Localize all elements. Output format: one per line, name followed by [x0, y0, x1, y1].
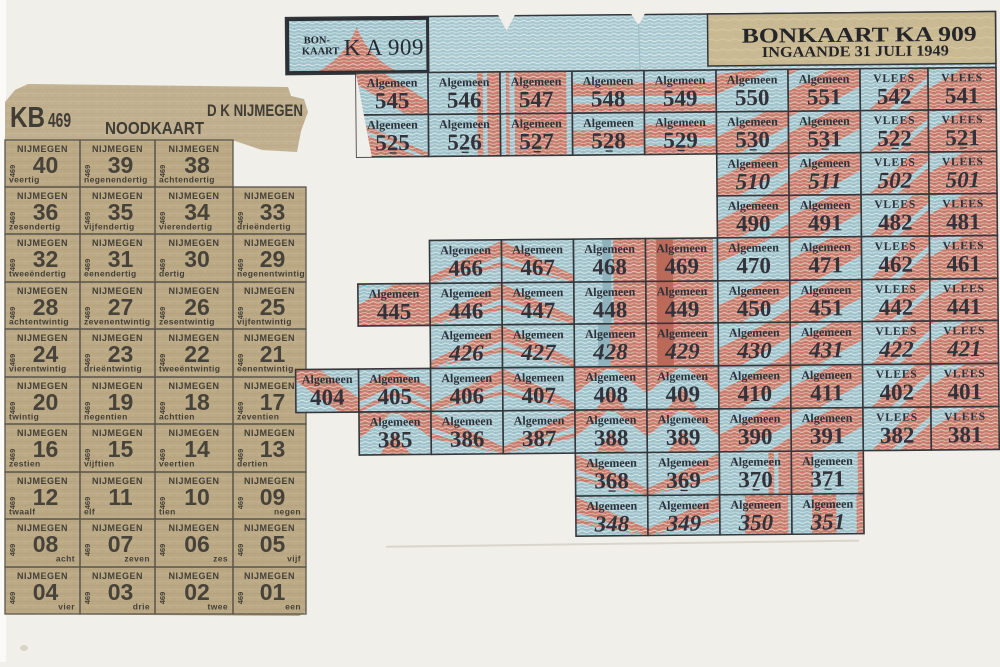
svg-text:531: 531 [807, 126, 842, 151]
svg-text:zes: zes [213, 554, 228, 564]
svg-text:501: 501 [946, 167, 981, 192]
svg-text:drieëndertig: drieëndertig [237, 222, 291, 232]
svg-text:402: 402 [879, 380, 914, 405]
svg-text:410: 410 [737, 381, 772, 406]
svg-text:471: 471 [808, 252, 843, 277]
svg-text:522: 522 [877, 126, 912, 151]
svg-text:386: 386 [450, 426, 485, 451]
svg-text:12: 12 [33, 484, 59, 510]
svg-text:442: 442 [879, 295, 914, 320]
svg-text:546: 546 [447, 87, 482, 112]
svg-text:469: 469 [48, 110, 71, 132]
svg-text:447: 447 [521, 298, 556, 323]
svg-text:389: 389 [666, 425, 701, 450]
svg-text:negen: negen [274, 507, 301, 517]
svg-text:30: 30 [184, 246, 210, 272]
svg-text:eenentwintig: eenentwintig [237, 364, 294, 374]
svg-text:382: 382 [880, 423, 915, 448]
svg-text:551: 551 [807, 84, 842, 109]
svg-text:achttien: achttien [159, 412, 195, 422]
svg-text:negentien: negentien [84, 412, 128, 422]
svg-text:achtentwintig: achtentwintig [9, 317, 69, 327]
svg-text:525: 525 [375, 130, 410, 155]
svg-text:545: 545 [375, 88, 410, 113]
svg-text:511: 511 [808, 168, 841, 193]
svg-text:vijftien: vijftien [84, 459, 115, 469]
svg-text:469: 469 [83, 592, 92, 605]
svg-text:409: 409 [665, 382, 700, 407]
svg-text:469: 469 [236, 544, 245, 557]
svg-text:446: 446 [449, 298, 484, 323]
svg-text:469: 469 [236, 592, 245, 605]
svg-text:dertien: dertien [237, 459, 268, 469]
svg-text:461: 461 [946, 251, 981, 276]
svg-text:08: 08 [33, 531, 59, 557]
svg-text:twintig: twintig [9, 412, 39, 422]
svg-text:548: 548 [591, 86, 626, 111]
svg-text:469: 469 [158, 544, 167, 557]
svg-text:vijfendertig: vijfendertig [84, 222, 135, 232]
svg-text:407: 407 [521, 383, 556, 408]
svg-text:D K NIJMEGEN: D K NIJMEGEN [207, 101, 303, 120]
svg-text:431: 431 [808, 337, 844, 362]
svg-text:428: 428 [592, 339, 628, 364]
svg-text:INGAANDE 31 JULI 1949: INGAANDE 31 JULI 1949 [762, 43, 949, 61]
svg-text:350: 350 [738, 510, 774, 535]
svg-text:KAART: KAART [302, 46, 340, 57]
svg-text:404: 404 [310, 385, 345, 410]
svg-text:381: 381 [948, 422, 983, 447]
svg-text:03: 03 [108, 579, 134, 605]
svg-text:K A 909: K A 909 [344, 34, 424, 60]
svg-text:387: 387 [522, 426, 557, 451]
svg-text:KB: KB [10, 102, 45, 134]
svg-text:421: 421 [946, 336, 982, 361]
svg-text:drie: drie [133, 602, 150, 612]
svg-text:550: 550 [735, 85, 770, 110]
svg-text:411: 411 [810, 380, 843, 405]
svg-text:466: 466 [448, 255, 483, 280]
svg-text:371: 371 [810, 466, 845, 491]
svg-text:547: 547 [519, 87, 554, 112]
svg-text:04: 04 [33, 579, 59, 605]
svg-text:469: 469 [158, 592, 167, 605]
svg-text:negenentwintig: negenentwintig [237, 269, 305, 279]
svg-text:zeventien: zeventien [237, 412, 279, 422]
svg-text:429: 429 [664, 339, 700, 364]
svg-text:502: 502 [878, 168, 913, 193]
svg-text:470: 470 [736, 253, 771, 278]
svg-text:NOODKAART: NOODKAART [105, 118, 204, 138]
svg-text:385: 385 [378, 427, 413, 452]
svg-text:01: 01 [260, 579, 286, 605]
svg-text:426: 426 [448, 340, 484, 365]
svg-text:462: 462 [878, 252, 913, 277]
svg-text:dertig: dertig [159, 269, 185, 279]
svg-text:401: 401 [947, 379, 982, 404]
svg-text:tweeëndertig: tweeëndertig [9, 269, 66, 279]
svg-text:348: 348 [594, 511, 630, 536]
svg-text:negenendertig: negenendertig [84, 175, 148, 185]
svg-text:388: 388 [594, 425, 629, 450]
svg-text:10: 10 [184, 484, 210, 510]
svg-text:526: 526 [447, 129, 482, 154]
svg-text:450: 450 [737, 296, 772, 321]
svg-text:481: 481 [946, 209, 981, 234]
svg-text:542: 542 [877, 84, 912, 109]
svg-text:469: 469 [8, 544, 17, 557]
svg-text:vijfentwintig: vijfentwintig [237, 317, 292, 327]
svg-text:achtendertig: achtendertig [159, 175, 215, 185]
svg-text:vier: vier [58, 602, 75, 612]
svg-text:zestien: zestien [9, 459, 41, 469]
svg-text:510: 510 [736, 169, 771, 194]
svg-text:05: 05 [260, 531, 286, 557]
svg-text:430: 430 [736, 338, 772, 363]
svg-text:445: 445 [377, 299, 412, 324]
svg-text:491: 491 [808, 210, 843, 235]
svg-text:467: 467 [520, 255, 555, 280]
svg-text:527: 527 [519, 129, 554, 154]
svg-text:acht: acht [56, 554, 75, 564]
svg-text:490: 490 [736, 211, 771, 236]
svg-text:vijf: vijf [287, 554, 301, 564]
svg-text:eenendertig: eenendertig [84, 269, 137, 279]
svg-text:391: 391 [810, 423, 845, 448]
svg-text:528: 528 [591, 128, 626, 153]
svg-text:441: 441 [947, 294, 982, 319]
svg-text:369: 369 [666, 468, 701, 493]
svg-text:541: 541 [945, 83, 980, 108]
svg-text:448: 448 [593, 297, 628, 322]
svg-text:521: 521 [945, 125, 980, 150]
svg-text:349: 349 [666, 511, 702, 536]
svg-text:405: 405 [377, 384, 412, 409]
svg-text:482: 482 [878, 210, 913, 235]
svg-text:zevenentwintig: zevenentwintig [84, 317, 151, 327]
svg-text:529: 529 [663, 128, 698, 153]
svg-text:veertig: veertig [9, 175, 40, 185]
svg-text:449: 449 [665, 297, 700, 322]
svg-text:vierentwintig: vierentwintig [9, 364, 67, 374]
svg-text:zesentwintig: zesentwintig [159, 317, 215, 327]
svg-text:549: 549 [663, 86, 698, 111]
svg-text:422: 422 [878, 337, 914, 362]
svg-text:veertien: veertien [159, 459, 195, 469]
svg-text:406: 406 [449, 383, 484, 408]
svg-text:drieëntwintig: drieëntwintig [84, 364, 142, 374]
svg-text:469: 469 [236, 497, 245, 510]
svg-text:zesendertig: zesendertig [9, 222, 61, 232]
svg-text:tien: tien [159, 507, 176, 517]
svg-text:twee: twee [208, 602, 229, 612]
svg-text:451: 451 [809, 295, 844, 320]
svg-text:elf: elf [84, 507, 95, 517]
svg-text:zeven: zeven [124, 554, 150, 564]
svg-text:469: 469 [83, 544, 92, 557]
svg-text:een: een [285, 602, 301, 612]
svg-text:468: 468 [592, 254, 627, 279]
svg-text:427: 427 [520, 340, 557, 365]
svg-text:351: 351 [810, 509, 846, 534]
svg-text:tweeëntwintig: tweeëntwintig [159, 364, 220, 374]
svg-text:02: 02 [184, 579, 210, 605]
svg-text:BON-: BON- [304, 35, 331, 46]
svg-text:530: 530 [735, 127, 770, 152]
svg-text:370: 370 [738, 467, 773, 492]
svg-text:408: 408 [593, 382, 628, 407]
svg-text:469: 469 [664, 254, 699, 279]
svg-text:390: 390 [738, 424, 773, 449]
svg-text:vierendertig: vierendertig [159, 222, 212, 232]
svg-text:11: 11 [108, 484, 133, 510]
svg-text:06: 06 [184, 531, 210, 557]
svg-text:469: 469 [8, 592, 17, 605]
svg-text:368: 368 [594, 468, 629, 493]
svg-text:twaalf: twaalf [9, 507, 36, 517]
